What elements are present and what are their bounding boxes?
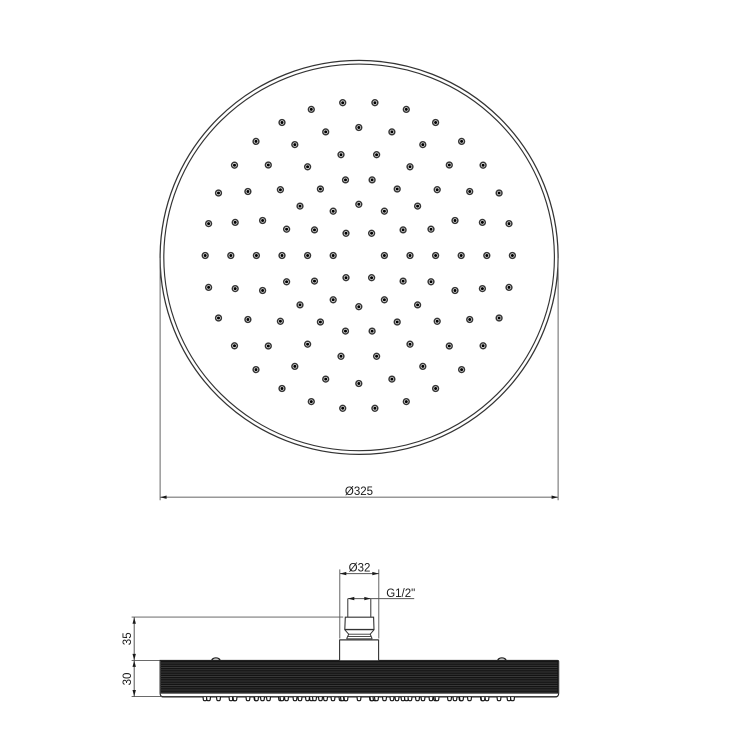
- svg-text:35: 35: [122, 632, 134, 645]
- svg-text:G1/2": G1/2": [386, 588, 415, 600]
- svg-text:Ø325: Ø325: [345, 486, 373, 498]
- svg-text:Ø32: Ø32: [349, 562, 371, 574]
- svg-text:30: 30: [122, 673, 134, 686]
